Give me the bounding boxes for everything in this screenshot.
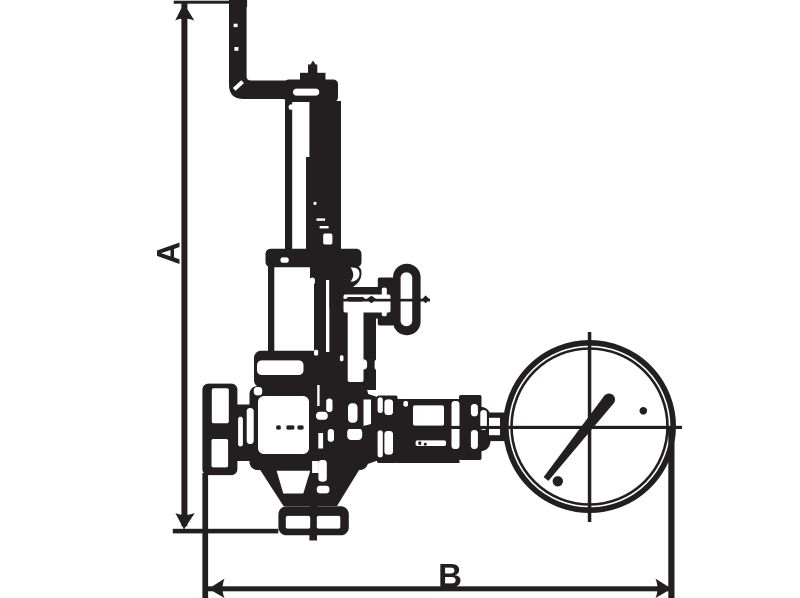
svg-text:A: A bbox=[150, 242, 186, 265]
svg-text:B: B bbox=[438, 557, 462, 594]
